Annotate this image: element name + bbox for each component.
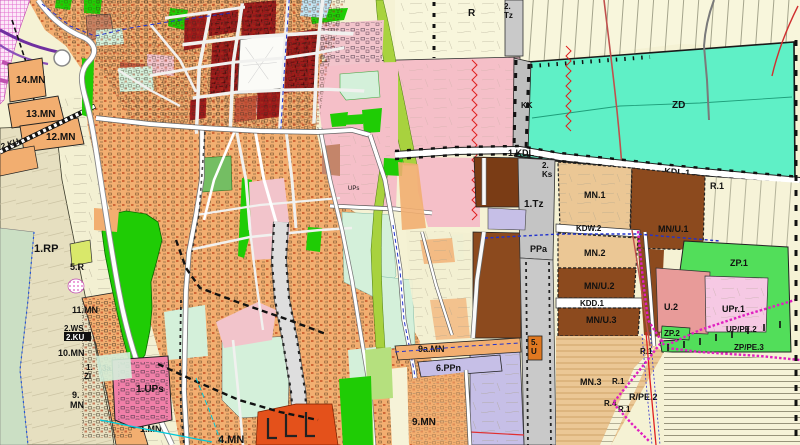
- svg-text:U: U: [531, 347, 537, 356]
- svg-text:MN/U.3: MN/U.3: [586, 315, 617, 325]
- svg-text:13.MN: 13.MN: [26, 109, 55, 120]
- svg-text:UPs: UPs: [348, 186, 359, 192]
- svg-text:Tz: Tz: [504, 11, 513, 20]
- svg-text:5.R: 5.R: [70, 262, 85, 272]
- svg-text:12.MN: 12.MN: [46, 132, 75, 143]
- svg-text:14.MN: 14.MN: [16, 75, 45, 86]
- svg-text:UPr.1: UPr.1: [722, 304, 745, 314]
- svg-text:ZD: ZD: [672, 100, 685, 111]
- svg-text:MN.3: MN.3: [580, 377, 602, 387]
- svg-text:Ks: Ks: [542, 170, 553, 179]
- svg-text:2.: 2.: [504, 2, 511, 11]
- svg-text:R: R: [468, 8, 476, 19]
- svg-text:4.MN: 4.MN: [218, 434, 244, 445]
- svg-text:MN: MN: [70, 400, 84, 410]
- svg-text:5.: 5.: [531, 338, 538, 347]
- svg-text:KK: KK: [521, 101, 533, 110]
- svg-text:ZP/PE.3: ZP/PE.3: [734, 343, 764, 352]
- svg-text:2.KU: 2.KU: [66, 333, 84, 342]
- svg-text:9.: 9.: [72, 390, 80, 400]
- svg-text:KDW.2: KDW.2: [576, 224, 602, 233]
- svg-text:MN/U.1: MN/U.1: [658, 224, 689, 234]
- svg-text:1.KDL: 1.KDL: [508, 148, 535, 158]
- svg-text:R.1: R.1: [710, 181, 724, 191]
- svg-text:MN/U.2: MN/U.2: [584, 281, 615, 291]
- svg-text:MN.1: MN.1: [584, 190, 606, 200]
- svg-text:R/PE.2: R/PE.2: [629, 392, 658, 402]
- svg-text:UP/PE.2: UP/PE.2: [726, 325, 757, 334]
- svg-text:PPa: PPa: [530, 244, 548, 254]
- svg-text:9.MN: 9.MN: [412, 417, 436, 428]
- svg-text:1.: 1.: [86, 363, 93, 372]
- svg-text:ZP.1: ZP.1: [730, 258, 748, 268]
- svg-text:1.UPs: 1.UPs: [136, 384, 164, 395]
- svg-text:R.1: R.1: [612, 377, 625, 386]
- svg-text:10.MN: 10.MN: [58, 348, 85, 358]
- svg-text:2.: 2.: [542, 161, 549, 170]
- svg-text:1.Tz: 1.Tz: [524, 199, 543, 210]
- svg-text:KDD.1: KDD.1: [580, 299, 605, 308]
- svg-text:11.MN: 11.MN: [72, 305, 98, 315]
- svg-text:6.PPn: 6.PPn: [436, 363, 461, 373]
- svg-text:U.2: U.2: [664, 302, 678, 312]
- svg-text:ZP.2: ZP.2: [664, 329, 680, 338]
- svg-text:2.WS: 2.WS: [64, 324, 84, 333]
- svg-text:1.RP: 1.RP: [34, 243, 58, 255]
- svg-text:MN.2: MN.2: [584, 248, 606, 258]
- svg-text:ZI: ZI: [84, 372, 91, 381]
